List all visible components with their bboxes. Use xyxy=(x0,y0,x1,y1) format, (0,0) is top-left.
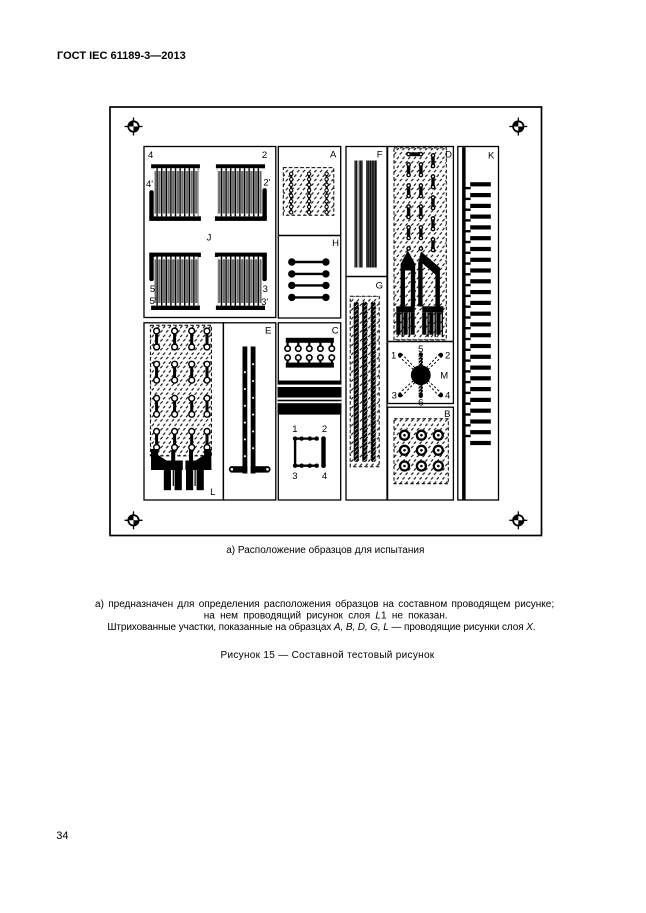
svg-text:4: 4 xyxy=(148,150,153,161)
svg-text:E: E xyxy=(265,325,271,336)
svg-text:Рисунок 15 — Составной тестовы: Рисунок 15 — Составной тестовый рисунок xyxy=(221,650,435,661)
svg-text:1: 1 xyxy=(292,424,297,435)
svg-text:L: L xyxy=(210,487,215,498)
svg-text:а) предназначен для определени: а) предназначен для определения располож… xyxy=(95,598,554,610)
svg-text:1: 1 xyxy=(391,350,396,361)
svg-text:Штрихованные участки, показанн: Штрихованные участки, показанные на обра… xyxy=(107,621,535,633)
svg-text:4': 4' xyxy=(146,179,153,190)
svg-text:ГОСТ IEC 61189-3—2013: ГОСТ IEC 61189-3—2013 xyxy=(57,50,186,62)
svg-text:C: C xyxy=(332,325,339,336)
svg-text:34: 34 xyxy=(56,830,68,842)
svg-text:3: 3 xyxy=(392,391,397,402)
svg-text:J: J xyxy=(207,233,212,244)
svg-text:F: F xyxy=(377,150,383,161)
svg-text:G: G xyxy=(376,281,383,292)
svg-text:2: 2 xyxy=(262,150,267,161)
svg-text:5: 5 xyxy=(418,344,423,355)
svg-text:5: 5 xyxy=(150,284,155,295)
svg-text:M: M xyxy=(440,371,448,382)
svg-text:3: 3 xyxy=(263,284,268,295)
svg-text:3: 3 xyxy=(292,471,297,482)
svg-text:2': 2' xyxy=(263,178,270,189)
svg-text:5': 5' xyxy=(150,296,157,307)
svg-text:B: B xyxy=(444,409,450,420)
svg-text:6: 6 xyxy=(418,397,423,408)
svg-text:4: 4 xyxy=(445,391,450,402)
svg-text:а) Расположение образцов для и: а) Расположение образцов для испытания xyxy=(226,544,424,556)
svg-text:на нем проводящий рисунок слоя: на нем проводящий рисунок слоя L1 не пок… xyxy=(204,611,448,622)
svg-text:4: 4 xyxy=(322,471,327,482)
svg-text:A: A xyxy=(330,150,337,161)
svg-text:2: 2 xyxy=(445,350,450,361)
svg-text:K: K xyxy=(488,151,495,162)
svg-text:H: H xyxy=(332,238,339,249)
svg-text:3': 3' xyxy=(261,297,268,308)
svg-text:2: 2 xyxy=(322,424,327,435)
